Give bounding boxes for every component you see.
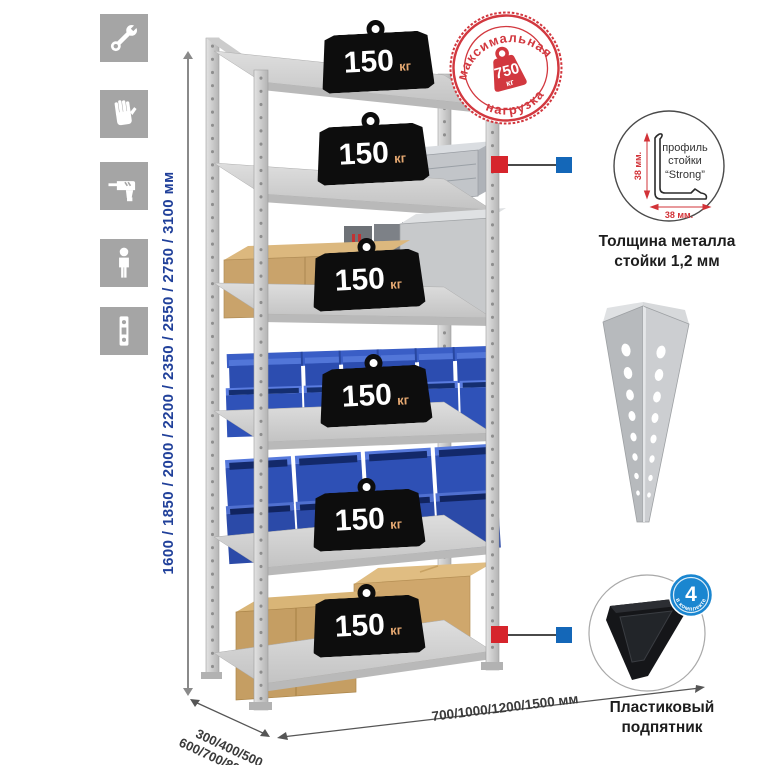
- gloves-icon: [100, 90, 148, 138]
- height-dimension-line: [187, 57, 189, 689]
- max-load-stamp: максимальная нагрузка 750 кг: [447, 9, 565, 127]
- angle-post-image: [597, 300, 702, 528]
- bottom-callout-red-marker: [491, 626, 508, 643]
- weight-value: 150: [338, 138, 390, 171]
- shelf-weight-badge: 150кг: [314, 109, 430, 189]
- profile-label-line3: “Strong”: [665, 169, 705, 181]
- weight-value: 150: [334, 504, 386, 537]
- shelf-weight-badge: 150кг: [310, 581, 426, 661]
- weight-unit: кг: [393, 140, 406, 166]
- weight-unit: кг: [389, 506, 402, 532]
- metal-thickness-caption: Толщина металла стойки 1,2 мм: [582, 232, 752, 272]
- wrench-icon: [100, 14, 148, 62]
- height-dimension-arrow-top: [183, 51, 193, 59]
- weight-value: 150: [341, 380, 393, 413]
- weight-unit: кг: [389, 266, 402, 292]
- profile-horizontal-dim: 38 мм.: [665, 210, 693, 220]
- height-options-label: 1600 / 1850 / 2000 / 2200 / 2350 / 2550 …: [160, 43, 180, 703]
- weight-unit: кг: [389, 612, 402, 638]
- quantity-badge-value: 4: [685, 583, 697, 606]
- weight-value: 150: [334, 610, 386, 643]
- shelf-weight-badge: 150кг: [317, 351, 433, 431]
- quantity-badge: 4 в комплекте: [668, 572, 714, 618]
- weight-unit: кг: [396, 382, 409, 408]
- top-callout-blue-marker: [556, 157, 572, 173]
- shelf-weight-badge: 150кг: [310, 235, 426, 315]
- profile-label-line2: стойки: [668, 155, 702, 167]
- weight-value: 150: [334, 264, 386, 297]
- top-callout-line: [505, 164, 561, 166]
- weight-value: 150: [343, 46, 395, 79]
- profile-detail-circle: 38 мм. 38 мм. профиль стойки “Strong”: [611, 108, 727, 224]
- bottom-callout-line: [505, 634, 561, 636]
- profile-label-line1: профиль: [662, 142, 708, 154]
- product-infographic: 1600 / 1850 / 2000 / 2200 / 2350 / 2550 …: [0, 0, 765, 765]
- weight-unit: кг: [398, 48, 411, 74]
- profile-vertical-dim: 38 мм.: [633, 152, 643, 180]
- person-icon: [100, 239, 148, 287]
- top-callout-red-marker: [491, 156, 508, 173]
- level-icon: [100, 307, 148, 355]
- metal-thickness-line1: Толщина металла: [582, 232, 752, 252]
- shelf-weight-badge: 150кг: [310, 475, 426, 555]
- metal-thickness-line2: стойки 1,2 мм: [582, 252, 752, 272]
- drill-icon: [100, 162, 148, 210]
- shelf-weight-badge: 150кг: [319, 17, 435, 97]
- bottom-callout-blue-marker: [556, 627, 572, 643]
